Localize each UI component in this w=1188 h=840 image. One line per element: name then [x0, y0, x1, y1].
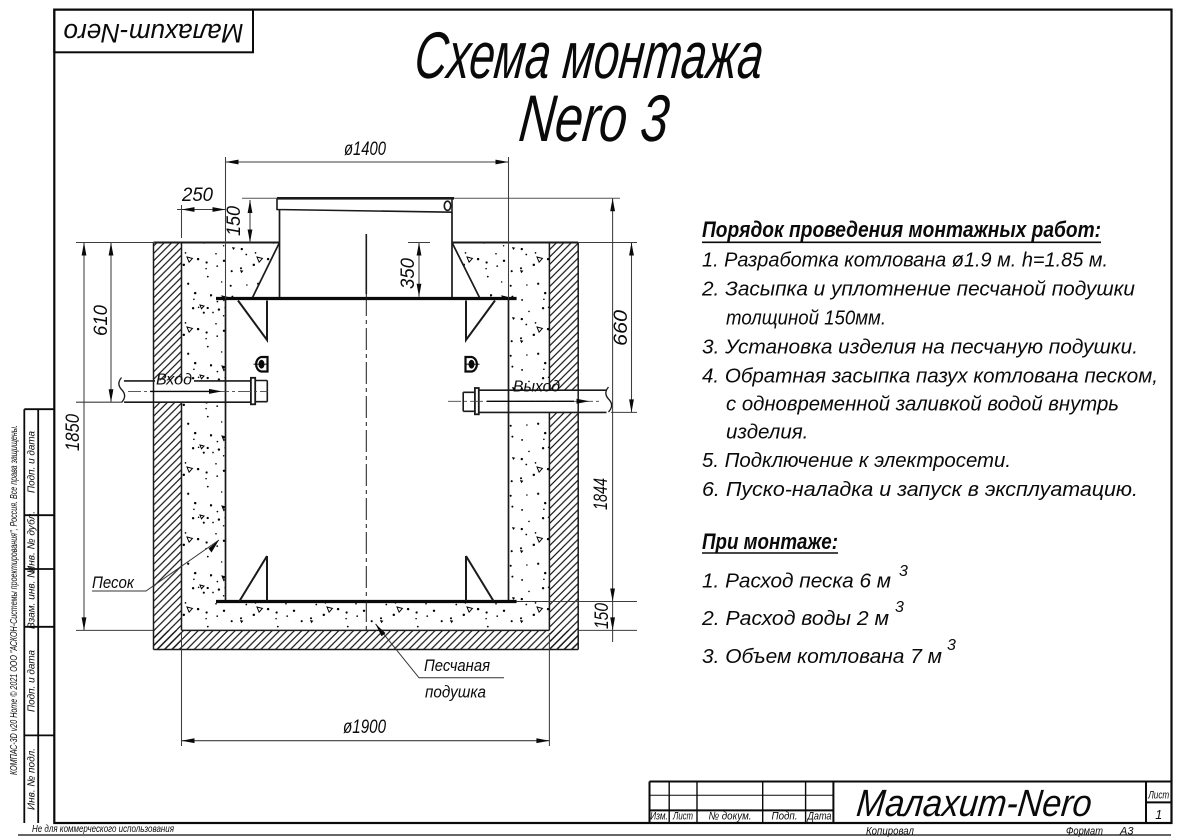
svg-text:6. Пуско-наладка и запуск в эк: 6. Пуско-наладка и запуск в эксплуатацию… [702, 478, 1138, 501]
svg-text:Подп. и дата: Подп. и дата [26, 431, 38, 493]
svg-text:4. Обратная засыпка пазух котл: 4. Обратная засыпка пазух котлована песк… [702, 365, 1158, 388]
svg-text:Копировал: Копировал [866, 826, 914, 838]
svg-text:Дата: Дата [806, 811, 832, 823]
svg-text:1850: 1850 [63, 414, 84, 451]
svg-text:150: 150 [592, 603, 613, 629]
svg-text:610: 610 [91, 305, 112, 336]
svg-text:№ докум.: № докум. [709, 811, 752, 823]
svg-text:Выход: Выход [513, 379, 560, 396]
svg-text:с одновременной заливкой водой: с одновременной заливкой водой внутрь [726, 393, 1119, 416]
svg-text:250: 250 [181, 185, 213, 206]
svg-text:3: 3 [899, 563, 908, 580]
svg-text:2. Расход воды 2 м: 2. Расход воды 2 м [701, 607, 889, 630]
svg-text:150: 150 [224, 206, 245, 236]
svg-text:2. Засыпка и уплотнение песчан: 2. Засыпка и уплотнение песчаной подушки [701, 278, 1135, 301]
svg-text:Песчаная: Песчаная [424, 657, 490, 675]
svg-text:ø1900: ø1900 [343, 717, 386, 738]
svg-text:толщиной 150мм.: толщиной 150мм. [726, 307, 886, 330]
svg-text:Лист: Лист [672, 811, 693, 823]
svg-text:Взам. инв. №: Взам. инв. № [26, 567, 38, 629]
svg-text:Инв. № подл.: Инв. № подл. [26, 748, 38, 810]
svg-text:Порядок проведения монтажных р: Порядок проведения монтажных работ: [702, 217, 1101, 242]
svg-text:ø1400: ø1400 [344, 139, 386, 160]
svg-text:изделия.: изделия. [726, 421, 808, 444]
svg-text:Малахит-Nero: Малахит-Nero [64, 18, 244, 48]
svg-text:А3: А3 [1119, 826, 1134, 838]
svg-text:3: 3 [947, 637, 956, 654]
svg-text:Подп.: Подп. [772, 811, 798, 823]
svg-text:Малахит-Nero: Малахит-Nero [855, 783, 1094, 825]
svg-text:1. Разработка котлована ø1.9 м: 1. Разработка котлована ø1.9 м. h=1.85 м… [702, 249, 1108, 272]
svg-text:КОМПАС-3D v20 Home © 2021 ООО: КОМПАС-3D v20 Home © 2021 ООО "АСКОН-Сис… [8, 425, 20, 775]
svg-text:1. Расход песка 6 м: 1. Расход песка 6 м [702, 570, 891, 593]
svg-text:подушка: подушка [425, 684, 486, 702]
svg-text:Nero 3: Nero 3 [516, 82, 673, 156]
svg-text:3. Установка изделия на песчан: 3. Установка изделия на песчаную подушки… [702, 336, 1138, 359]
svg-text:Вход: Вход [156, 372, 192, 389]
svg-text:Подп. и дата: Подп. и дата [26, 650, 38, 712]
svg-text:Изм.: Изм. [650, 811, 668, 823]
svg-text:5. Подключение к электросети.: 5. Подключение к электросети. [702, 449, 1011, 472]
svg-text:350: 350 [398, 258, 419, 289]
svg-text:660: 660 [611, 310, 632, 346]
svg-text:Формат: Формат [1066, 826, 1103, 838]
svg-text:Инв. № дубл.: Инв. № дубл. [26, 511, 38, 573]
svg-text:3. Объем котлована 7 м: 3. Объем котлована 7 м [702, 645, 942, 668]
svg-text:1844: 1844 [591, 478, 612, 510]
svg-text:Не для коммерческого использов: Не для коммерческого использования [32, 823, 174, 835]
svg-text:1: 1 [1155, 808, 1162, 822]
svg-text:3: 3 [895, 599, 904, 616]
svg-text:Лист: Лист [1147, 790, 1169, 802]
svg-text:При монтаже:: При монтаже: [702, 529, 838, 554]
svg-text:Песок: Песок [92, 574, 135, 592]
